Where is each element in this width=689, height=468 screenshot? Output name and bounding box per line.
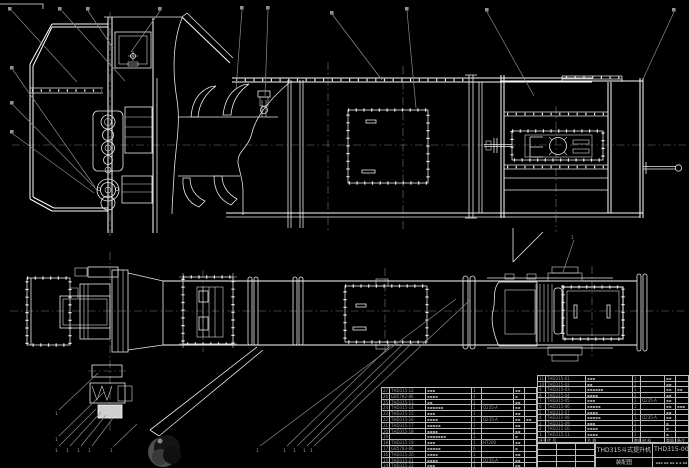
centerlines (10, 12, 686, 432)
balloon-number: 1 (55, 411, 58, 417)
title-block: THD315斗式提升机 装配图 THD315-00 ▪▪▪ ▪▪ ▪▪ ▪ ▪ … (537, 443, 689, 468)
balloon-number: 1 (88, 448, 91, 454)
balloon-number: 1 (110, 448, 113, 454)
drawing-subtitle: 装配图 (596, 457, 652, 468)
balloon-number: 1 (293, 448, 296, 454)
bom-row: 14THD315-22▪▪▪1▪▪ (382, 463, 536, 468)
drawing-title: THD315斗式提升机 (596, 444, 652, 457)
balloon-number: 1 (571, 235, 574, 241)
balloon-number: 1 (77, 448, 80, 454)
balloon-number: 1 (66, 448, 69, 454)
cad-drawing-canvas: 1 1 1 1 1 1 1 1 1 1 1 1 1 27THD315-12▪▪▪… (0, 0, 689, 468)
drawing-number: THD315-00 (653, 444, 689, 457)
bom-table-left: 27THD315-12▪▪▪1▪▪26GB5782-86▪▪▪▪4▪25THD3… (381, 387, 537, 468)
drawing-info-row: ▪▪▪ ▪▪ ▪▪ ▪ ▪ ▪▪ (653, 457, 689, 468)
watermark-logo (148, 435, 181, 467)
signature-grid (538, 444, 595, 468)
balloon-number: 1 (310, 448, 313, 454)
balloon-number: 1 (283, 448, 286, 454)
balloon-number: 1 (55, 448, 58, 454)
balloon-number: 1 (256, 448, 259, 454)
balloon-number: 1 (55, 437, 58, 443)
balloon-number: 1 (303, 448, 306, 454)
bom-table-right: 11THD315-01▪▪▪1▪▪10THD315-02▪▪1▪▪9THD315… (537, 375, 689, 443)
frame-corner (0, 4, 43, 9)
